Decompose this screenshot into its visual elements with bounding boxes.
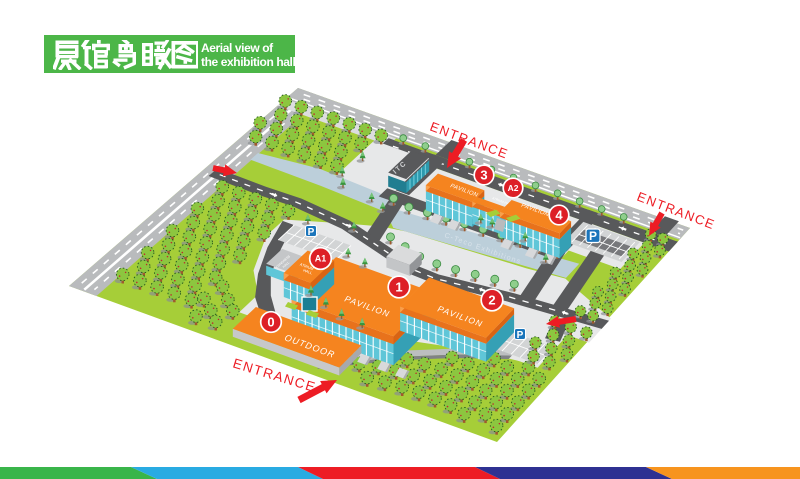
svg-text:4: 4	[555, 208, 563, 223]
svg-text:0: 0	[267, 315, 274, 330]
svg-text:A1: A1	[315, 254, 327, 264]
svg-text:A2: A2	[508, 183, 519, 193]
svg-text:3: 3	[480, 168, 487, 183]
svg-text:P: P	[308, 227, 315, 238]
svg-text:2: 2	[488, 293, 495, 308]
svg-text:P: P	[517, 330, 524, 341]
svg-text:P: P	[589, 229, 597, 243]
svg-text:1: 1	[395, 280, 402, 295]
